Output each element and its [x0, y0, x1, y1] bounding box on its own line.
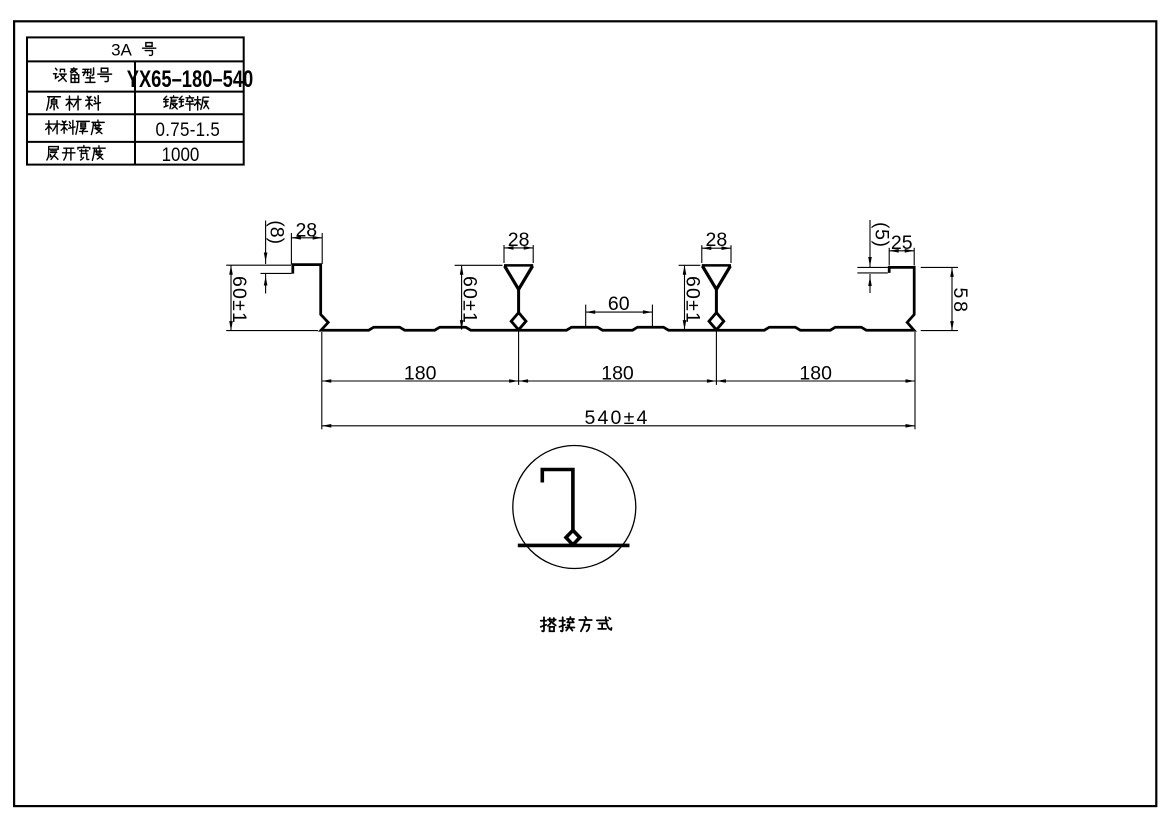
svg-text:60: 60 [608, 293, 630, 315]
svg-text:28: 28 [508, 229, 530, 251]
svg-text:0.75-1.5: 0.75-1.5 [156, 118, 221, 140]
svg-text:60±1: 60±1 [682, 276, 704, 324]
svg-text:(5): (5) [870, 222, 892, 248]
svg-text:58: 58 [949, 288, 971, 315]
svg-text:180: 180 [601, 363, 634, 385]
svg-text:25: 25 [891, 232, 913, 254]
svg-text:60±1: 60±1 [459, 276, 481, 324]
svg-text:1000: 1000 [162, 143, 200, 165]
svg-text:540±4: 540±4 [584, 407, 649, 429]
svg-text:(8): (8) [265, 220, 287, 244]
svg-text:60±1: 60±1 [228, 276, 250, 324]
svg-text:3A: 3A [111, 40, 132, 59]
svg-text:28: 28 [706, 229, 728, 251]
svg-text:28: 28 [295, 219, 317, 241]
svg-text:180: 180 [799, 363, 832, 385]
svg-text:180: 180 [404, 363, 437, 385]
svg-text:YX65–180–540: YX65–180–540 [127, 66, 254, 93]
